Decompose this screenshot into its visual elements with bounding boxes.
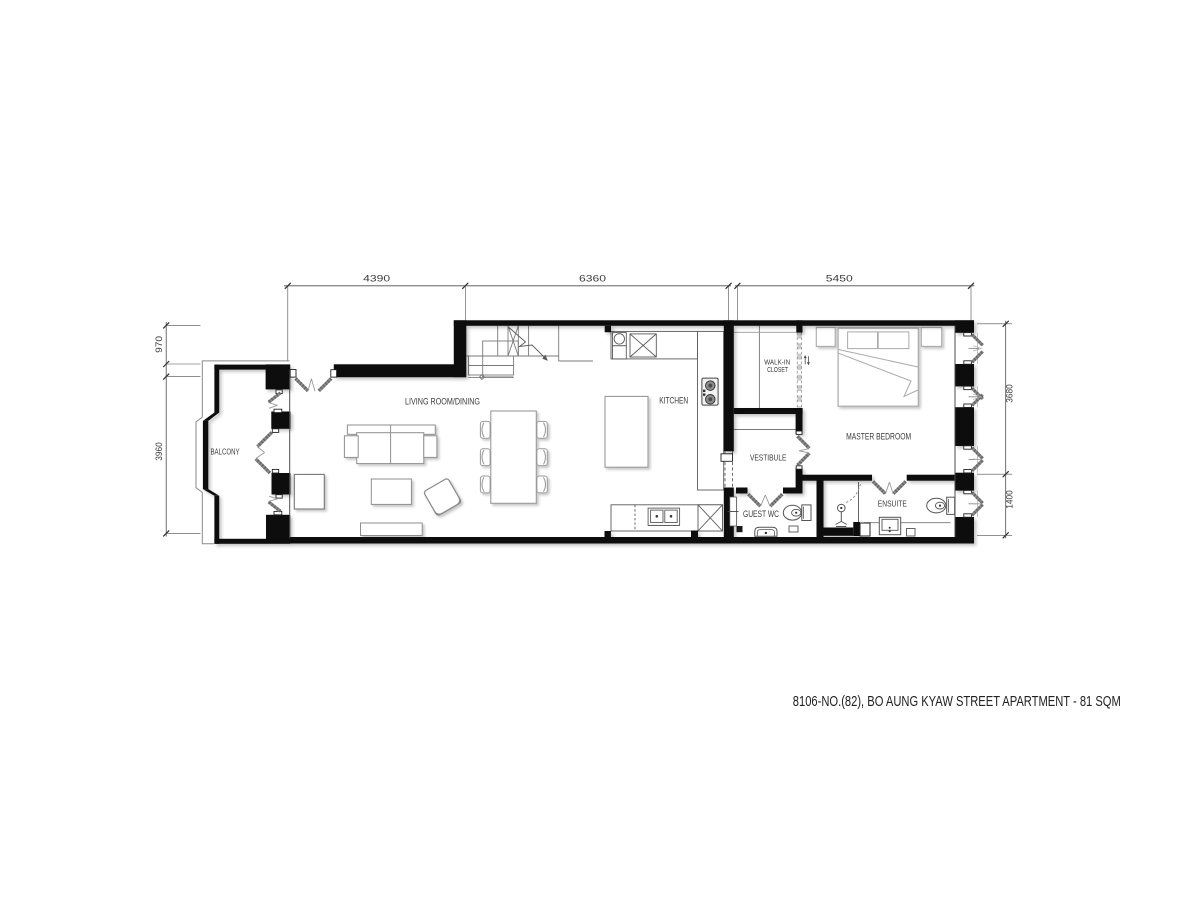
svg-text:8106-NO.(82), BO AUNG KYAW STR: 8106-NO.(82), BO AUNG KYAW STREET APARTM… [793, 693, 1121, 710]
svg-text:3680: 3680 [1005, 384, 1016, 403]
svg-text:6360: 6360 [579, 273, 606, 284]
svg-text:CLOSET: CLOSET [767, 365, 788, 374]
svg-text:1400: 1400 [1005, 490, 1016, 509]
svg-text:VESTIBULE: VESTIBULE [750, 452, 787, 462]
svg-text:3960: 3960 [154, 442, 165, 461]
svg-text:KITCHEN: KITCHEN [659, 395, 688, 405]
svg-text:LIVING ROOM/DINING: LIVING ROOM/DINING [405, 397, 480, 407]
svg-text:GUEST WC: GUEST WC [743, 509, 779, 519]
svg-text:MASTER BEDROOM: MASTER BEDROOM [846, 432, 911, 442]
svg-text:4390: 4390 [363, 273, 390, 284]
svg-text:5450: 5450 [826, 273, 853, 284]
svg-text:BALCONY: BALCONY [211, 447, 240, 456]
svg-text:ENSUITE: ENSUITE [878, 499, 907, 509]
svg-text:970: 970 [154, 336, 165, 353]
